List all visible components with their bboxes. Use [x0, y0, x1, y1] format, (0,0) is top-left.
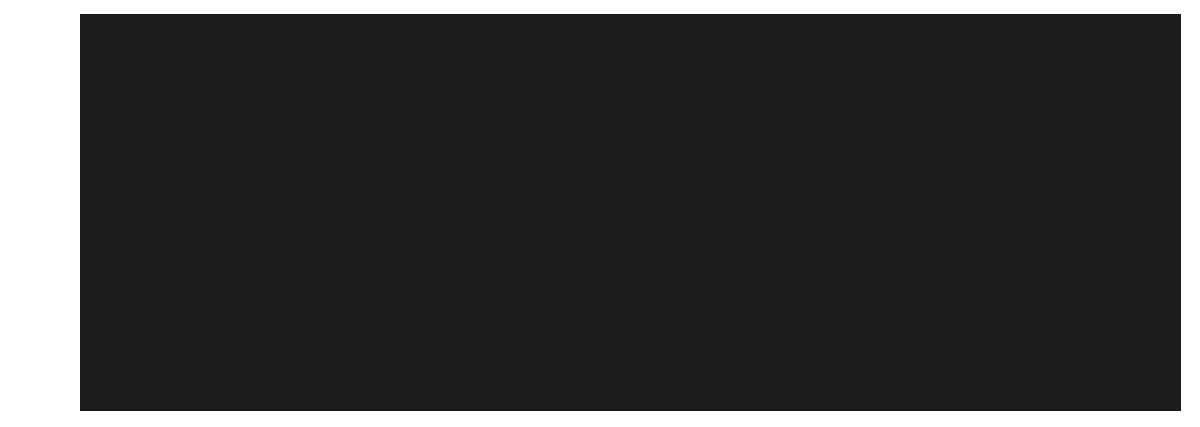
page-background [0, 0, 1200, 427]
blank-screen-panel [80, 14, 1181, 411]
